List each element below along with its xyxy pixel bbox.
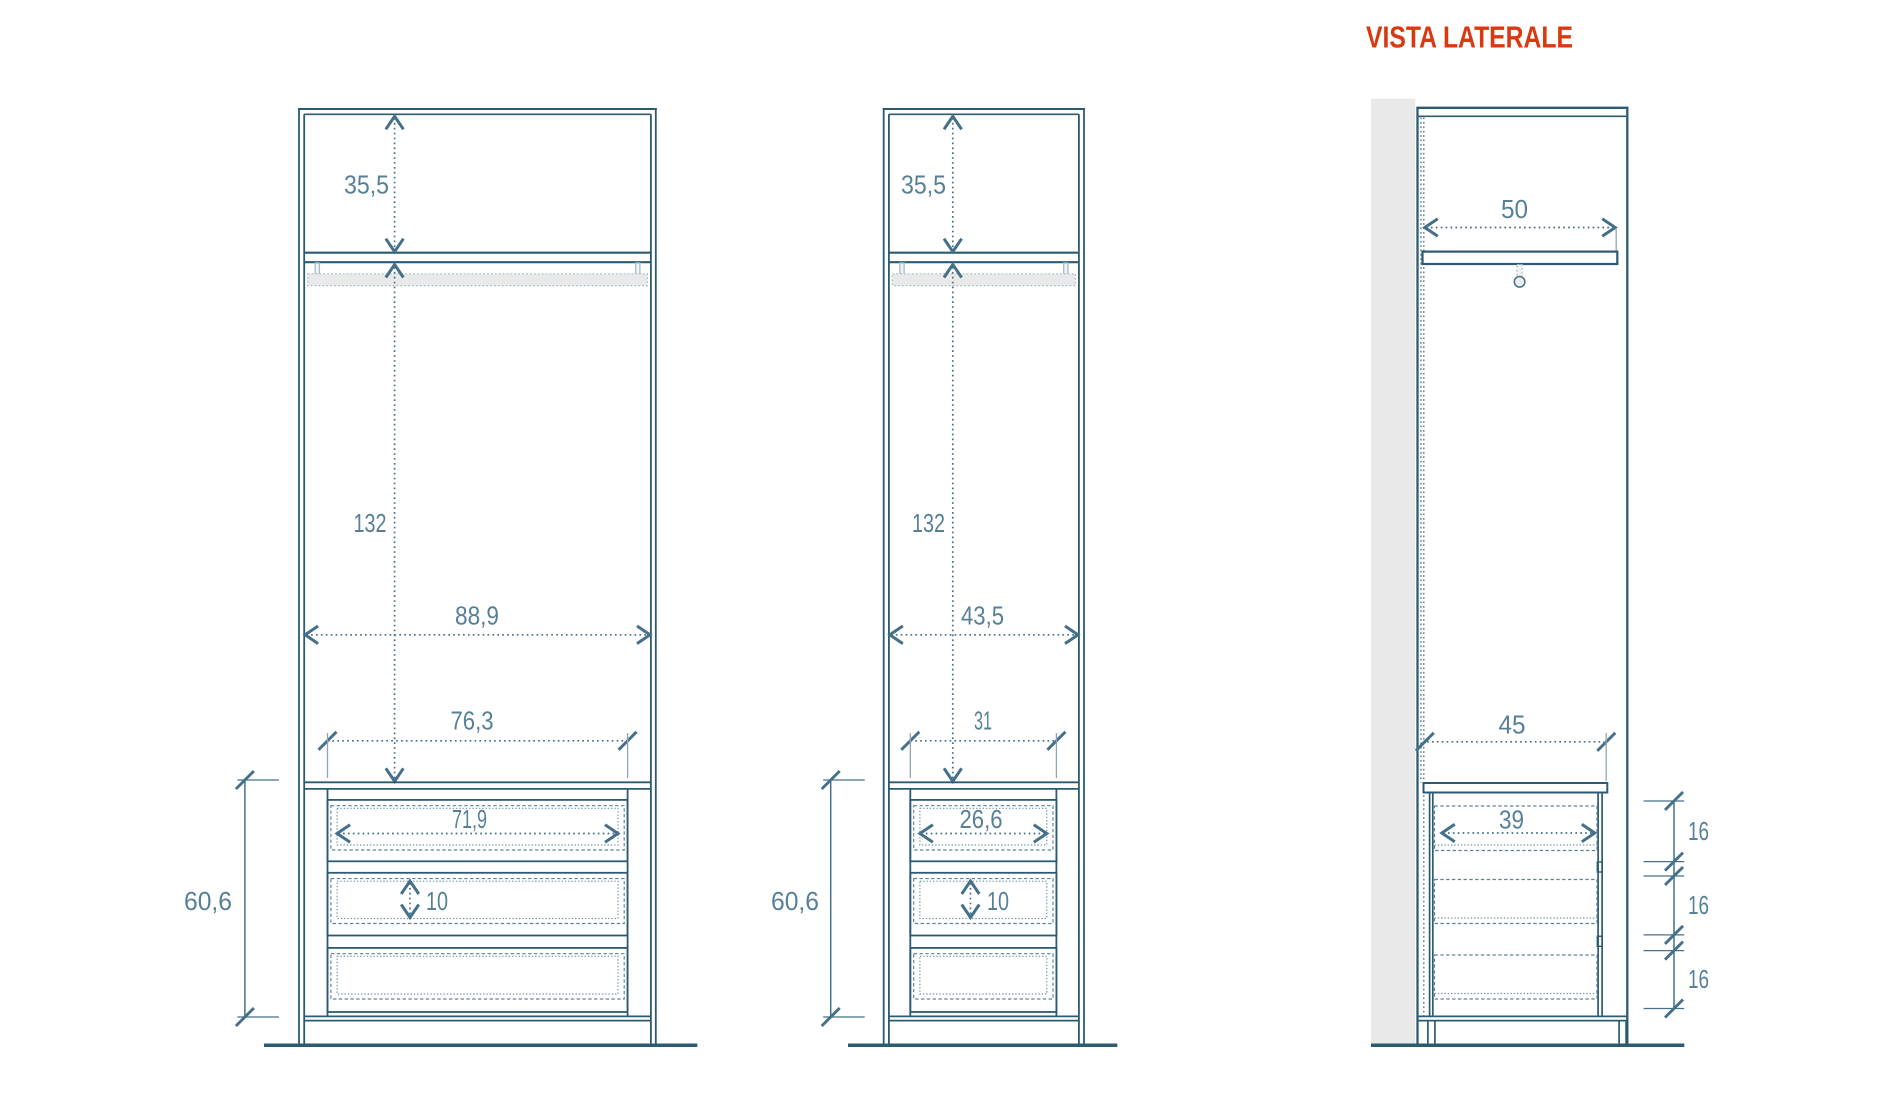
svg-text:132: 132: [354, 508, 387, 538]
svg-text:43,5: 43,5: [961, 601, 1004, 631]
svg-text:132: 132: [912, 508, 945, 538]
svg-text:VISTA LATERALE: VISTA LATERALE: [1366, 20, 1573, 55]
svg-text:45: 45: [1499, 710, 1526, 740]
svg-text:35,5: 35,5: [901, 170, 946, 200]
svg-text:50: 50: [1501, 194, 1528, 224]
svg-text:88,9: 88,9: [455, 601, 499, 631]
svg-text:16: 16: [1688, 964, 1709, 994]
svg-text:10: 10: [426, 886, 448, 916]
svg-text:60,6: 60,6: [771, 886, 819, 916]
svg-text:39: 39: [1499, 805, 1524, 835]
svg-text:16: 16: [1688, 816, 1709, 846]
svg-text:71,9: 71,9: [452, 804, 487, 834]
svg-text:26,6: 26,6: [960, 804, 1003, 834]
svg-text:10: 10: [987, 886, 1009, 916]
svg-text:76,3: 76,3: [451, 706, 494, 736]
svg-text:31: 31: [974, 706, 992, 736]
svg-text:60,6: 60,6: [184, 886, 232, 916]
svg-text:35,5: 35,5: [344, 170, 389, 200]
svg-text:16: 16: [1688, 890, 1709, 920]
